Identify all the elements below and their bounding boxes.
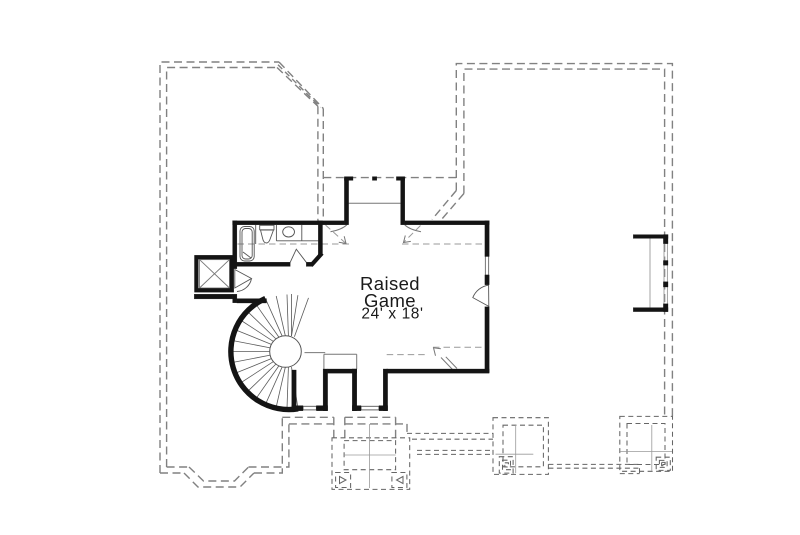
svg-text:24' x 18': 24' x 18'	[361, 306, 423, 323]
